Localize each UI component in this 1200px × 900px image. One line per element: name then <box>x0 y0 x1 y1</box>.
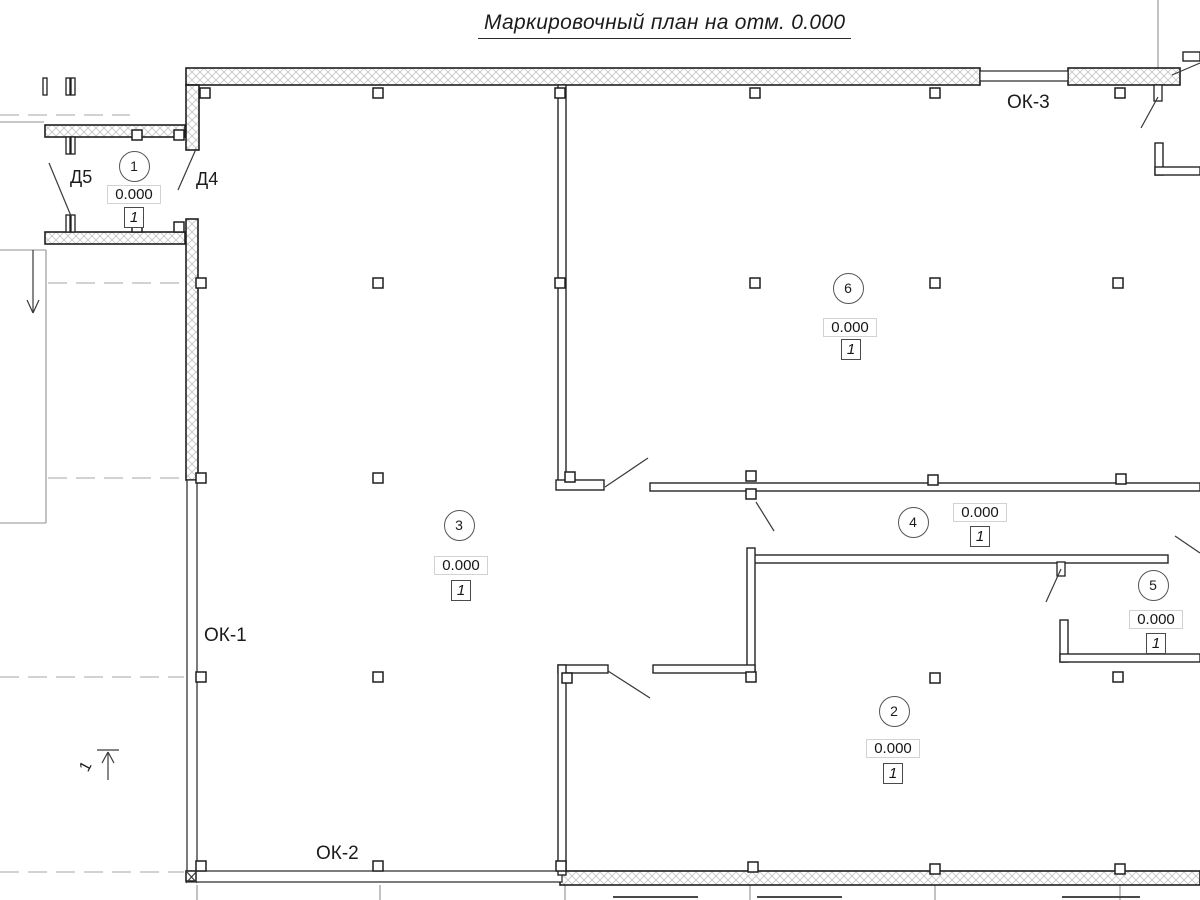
window-band <box>186 871 562 882</box>
door-jamb <box>71 137 75 154</box>
window-band <box>980 71 1068 81</box>
column-marker <box>1113 672 1123 682</box>
column-marker <box>196 278 206 288</box>
column-marker <box>373 672 383 682</box>
column-marker <box>1115 88 1125 98</box>
door-jamb <box>1154 85 1162 101</box>
column-marker <box>930 278 940 288</box>
column-marker <box>373 861 383 871</box>
hatched-wall <box>45 232 185 244</box>
column-marker <box>562 673 572 683</box>
door-jamb <box>71 215 75 232</box>
plan-drawing <box>0 0 1200 900</box>
leader-line <box>102 752 108 763</box>
hatched-wall <box>186 68 980 85</box>
column-marker <box>750 278 760 288</box>
room-number-circle: 5 <box>1138 570 1169 601</box>
plan-title: Маркировочный план на отм. 0.000 <box>478 11 851 39</box>
room-elevation-box: 0.000 <box>107 185 161 204</box>
partition-wall <box>558 665 566 875</box>
partition-wall <box>747 548 755 672</box>
hatched-wall <box>186 85 199 150</box>
column-marker <box>1116 474 1126 484</box>
column-marker <box>200 88 210 98</box>
window-label-ok2: ОК-2 <box>316 843 359 865</box>
door-jamb <box>43 78 47 95</box>
room-type-box: 1 <box>124 207 144 228</box>
leader-line <box>178 149 196 190</box>
room-number-circle: 4 <box>898 507 929 538</box>
hatched-wall <box>45 125 185 137</box>
column-marker <box>196 861 206 871</box>
leader-line <box>33 300 39 313</box>
leader-line <box>1141 97 1158 128</box>
leader-line <box>1175 536 1200 553</box>
room-type-box: 1 <box>841 339 861 360</box>
room-type-box: 1 <box>1146 633 1166 654</box>
hatched-walls <box>45 68 1200 885</box>
room-elevation-box: 0.000 <box>866 739 920 758</box>
room-type-box: 1 <box>883 763 903 784</box>
room-number-circle: 1 <box>119 151 150 182</box>
door-jamb <box>66 137 70 154</box>
column-marker <box>565 472 575 482</box>
door-jamb <box>71 78 75 95</box>
column-marker <box>1115 864 1125 874</box>
column-marker <box>555 278 565 288</box>
room-elevation-box: 0.000 <box>434 556 488 575</box>
door-label-d5: Д5 <box>70 167 92 188</box>
leader-line <box>608 671 650 698</box>
column-marker <box>746 489 756 499</box>
partition-wall <box>1155 167 1200 175</box>
hatched-wall <box>560 871 1200 885</box>
grid-dashed-lines <box>0 115 184 872</box>
column-marker <box>174 222 184 232</box>
partition-wall <box>556 480 604 490</box>
leader-line <box>1046 569 1061 602</box>
column-marker <box>746 471 756 481</box>
column-marker <box>196 672 206 682</box>
room-elevation-box: 0.000 <box>1129 610 1183 629</box>
room-type-box: 1 <box>451 580 471 601</box>
leader-line <box>756 502 774 531</box>
floor-plan-canvas: Маркировочный план на отм. 0.000 ОК-3 ОК… <box>0 0 1200 900</box>
column-marker <box>750 88 760 98</box>
leader-line <box>108 752 114 763</box>
partition-wall <box>1060 654 1200 662</box>
column-marker <box>1113 278 1123 288</box>
room-number-circle: 2 <box>879 696 910 727</box>
column-marker <box>930 864 940 874</box>
column-marker <box>748 862 758 872</box>
column-marker <box>556 861 566 871</box>
column-marker <box>928 475 938 485</box>
door-jamb <box>66 215 70 232</box>
column-marker <box>196 473 206 483</box>
room-elevation-box: 0.000 <box>953 503 1007 522</box>
column-marker <box>132 130 142 140</box>
hatched-wall <box>1068 68 1180 85</box>
leader-line <box>27 300 33 313</box>
column-marker <box>373 473 383 483</box>
room-elevation-box: 0.000 <box>823 318 877 337</box>
leader-line <box>605 458 648 487</box>
leader-line <box>49 163 71 216</box>
column-marker <box>555 88 565 98</box>
door-jamb <box>66 78 70 95</box>
room-type-box: 1 <box>970 526 990 547</box>
room-number-circle: 6 <box>833 273 864 304</box>
door-jambs <box>43 78 1162 576</box>
partition-wall <box>754 555 1168 563</box>
window-label-ok3: ОК-3 <box>1007 92 1050 114</box>
hatched-wall <box>186 219 198 480</box>
column-marker <box>930 88 940 98</box>
column-marker <box>373 88 383 98</box>
column-marker <box>930 673 940 683</box>
column-marker <box>174 130 184 140</box>
room-number-circle: 3 <box>444 510 475 541</box>
column-marker <box>373 278 383 288</box>
column-marker <box>746 672 756 682</box>
door-label-d4: Д4 <box>196 169 218 190</box>
partition-wall <box>653 665 755 673</box>
partition-wall <box>1183 52 1200 61</box>
window-label-ok1: ОК-1 <box>204 625 247 647</box>
